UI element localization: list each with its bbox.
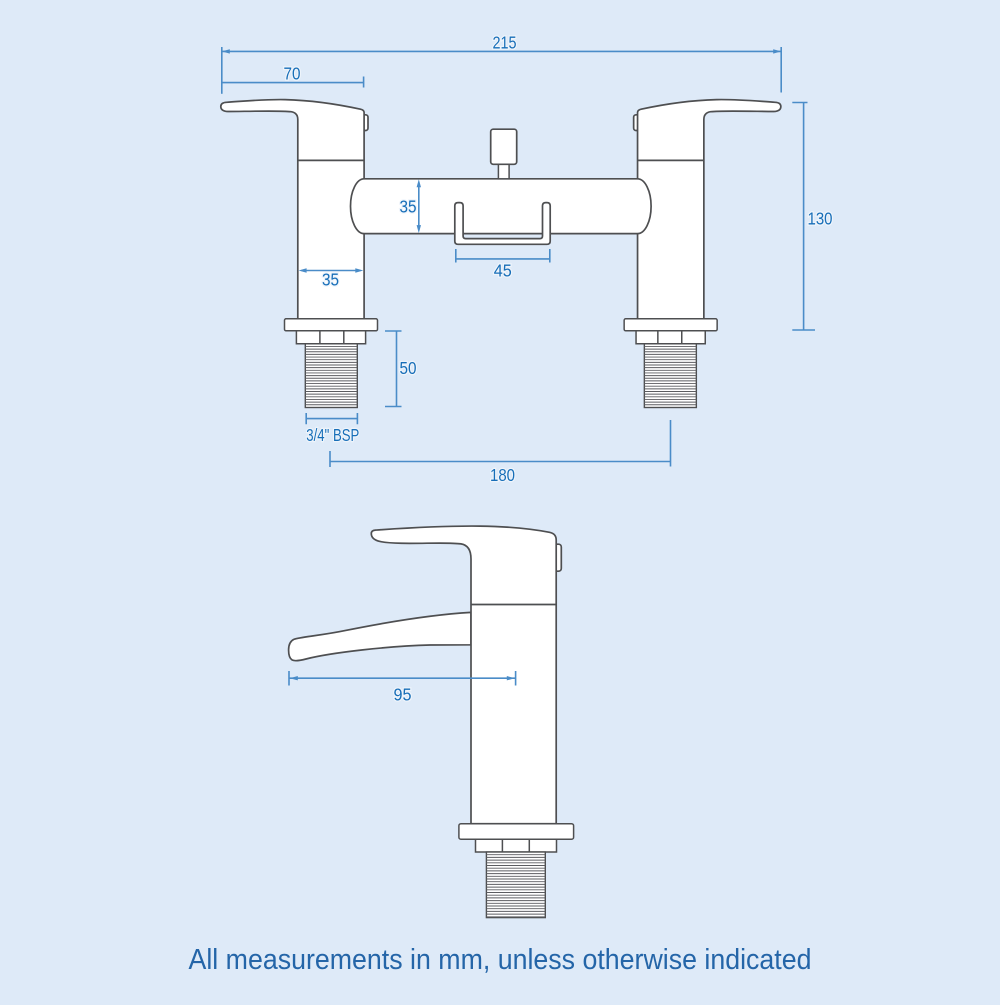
svg-text:180: 180 bbox=[490, 465, 515, 485]
svg-text:45: 45 bbox=[494, 261, 512, 281]
svg-text:35: 35 bbox=[322, 269, 339, 289]
svg-text:95: 95 bbox=[394, 685, 412, 705]
svg-text:3/4" BSP: 3/4" BSP bbox=[306, 425, 359, 445]
svg-text:All measurements in mm, unless: All measurements in mm, unless otherwise… bbox=[189, 944, 812, 976]
svg-text:35: 35 bbox=[400, 197, 417, 217]
svg-text:130: 130 bbox=[808, 208, 833, 228]
svg-text:215: 215 bbox=[493, 32, 517, 52]
svg-text:70: 70 bbox=[284, 63, 301, 83]
svg-text:50: 50 bbox=[400, 358, 417, 378]
